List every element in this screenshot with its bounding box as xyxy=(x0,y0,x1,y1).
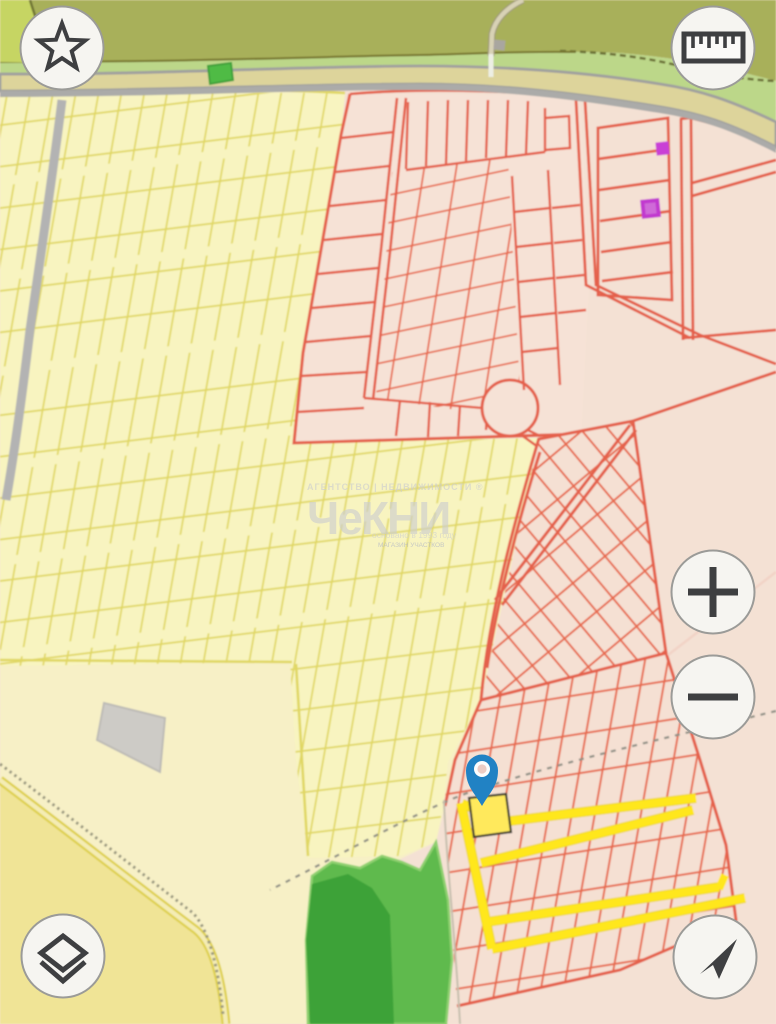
svg-text:МАГАЗИН УЧАСТКОВ: МАГАЗИН УЧАСТКОВ xyxy=(378,542,444,549)
svg-text:основано в 1993 году: основано в 1993 году xyxy=(372,530,457,540)
svg-text:АГЕНТСТВО | НЕДВИЖИМОСТИ ®: АГЕНТСТВО | НЕДВИЖИМОСТИ ® xyxy=(307,482,484,492)
